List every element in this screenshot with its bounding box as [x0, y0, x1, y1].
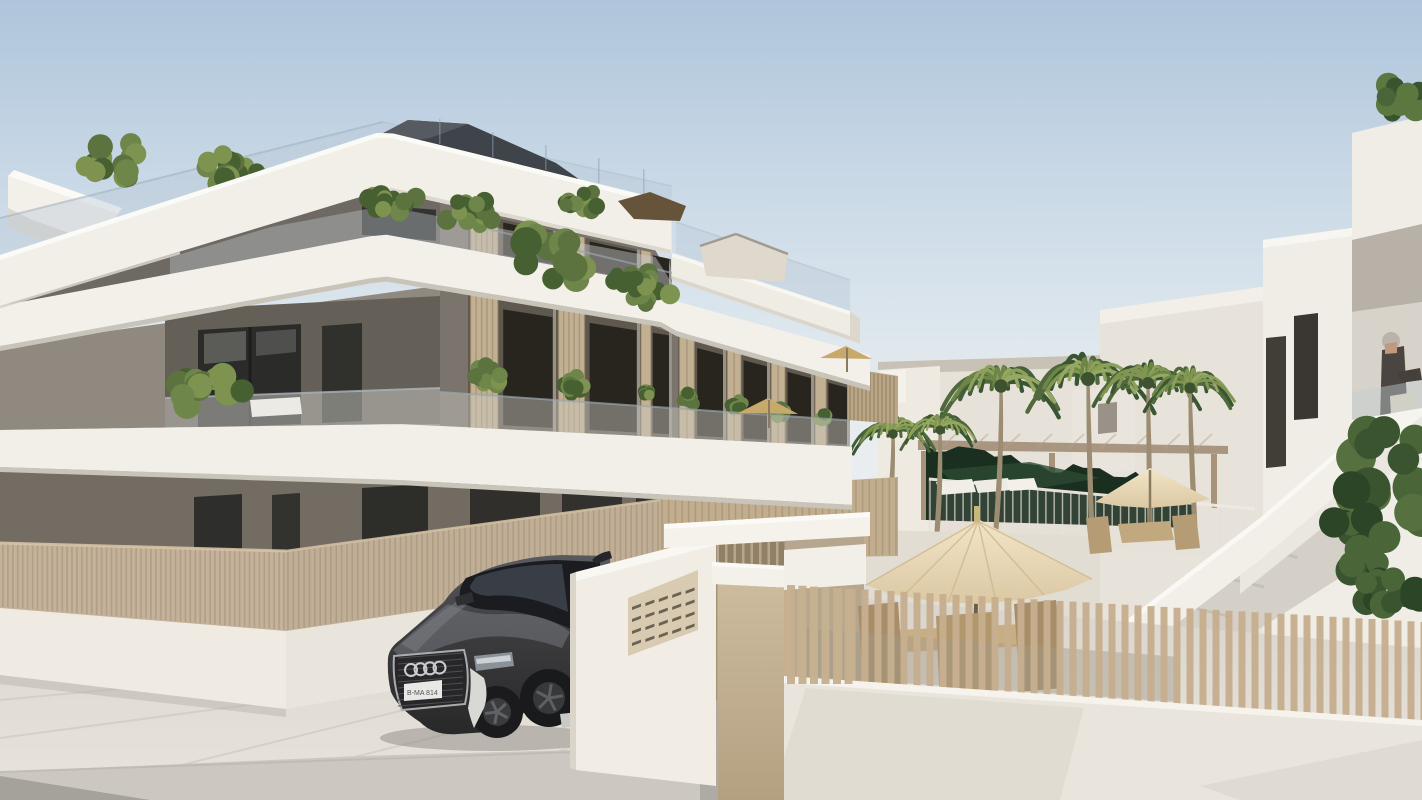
svg-text:B-MA 814: B-MA 814 — [407, 690, 438, 697]
